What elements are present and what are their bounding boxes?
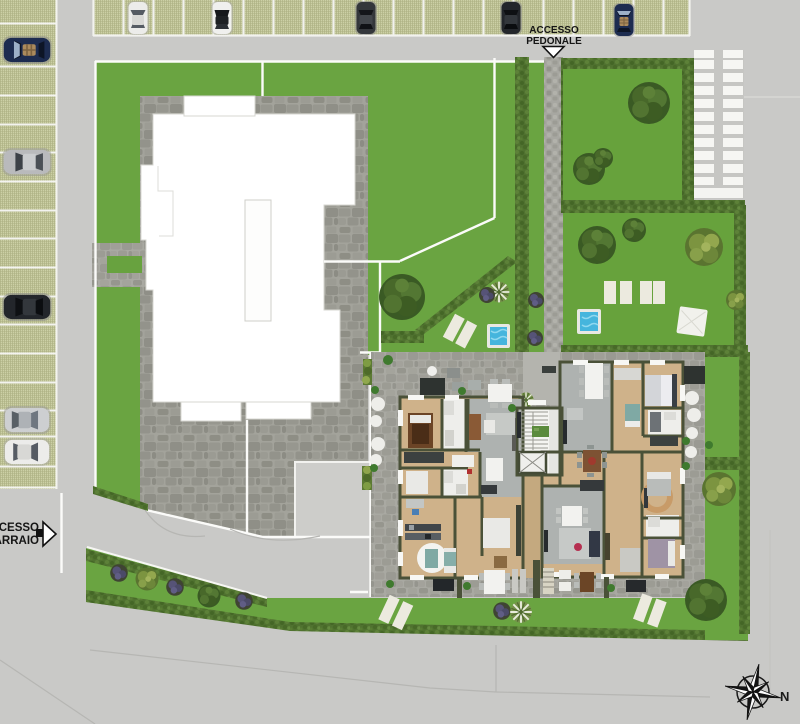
svg-text:PEDONALE: PEDONALE — [526, 36, 582, 47]
svg-text:ACCESSO: ACCESSO — [529, 25, 579, 36]
svg-text:CCESSO: CCESSO — [0, 522, 39, 534]
svg-text:N: N — [780, 689, 789, 704]
svg-text:ARRAIO: ARRAIO — [0, 535, 39, 547]
